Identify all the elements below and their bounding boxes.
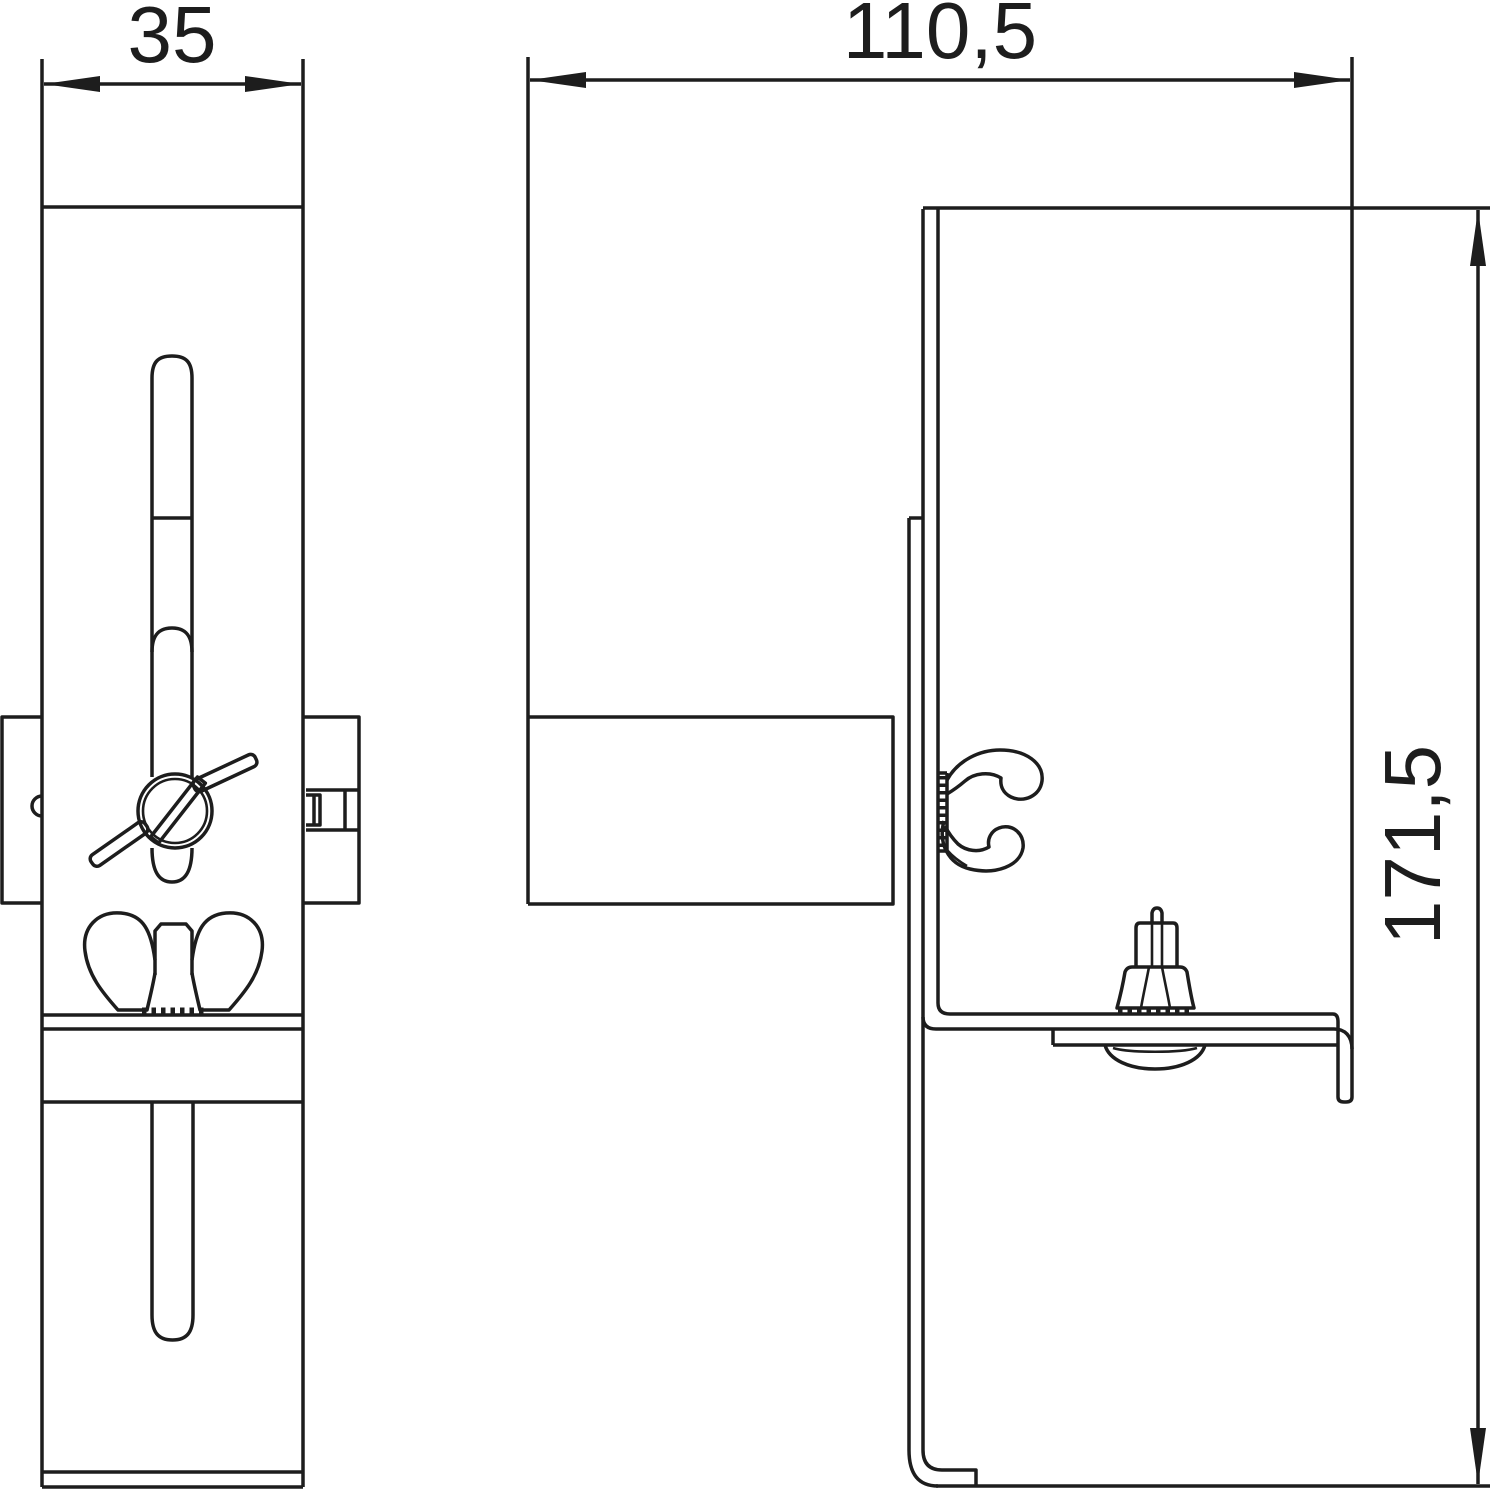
front-view	[2, 59, 359, 1487]
wing-nut-right-wing	[192, 913, 262, 1010]
dowel-inner-lines	[1141, 967, 1170, 1008]
dimension-label-front-width: 35	[128, 0, 217, 79]
slot-dome-arc	[152, 628, 192, 652]
lip-bottom-cap	[1338, 1097, 1352, 1102]
arrowhead-down	[1470, 1428, 1486, 1484]
dowel-anchor	[1117, 967, 1194, 1008]
clamp-block	[528, 717, 893, 904]
side-view	[528, 57, 1490, 1486]
technical-drawing-canvas: 35 110,5 171,5	[0, 0, 1500, 1489]
dimension-label-side-height: 171,5	[1368, 745, 1457, 945]
slot-lower-cap	[152, 1315, 193, 1340]
left-tab	[2, 717, 42, 903]
under-flange-washer	[1053, 1029, 1338, 1045]
foot-inner-bend	[923, 1450, 976, 1486]
right-tab	[303, 717, 359, 903]
slot-upper-sides	[152, 378, 192, 777]
side-wing-nut-lower-wing	[942, 821, 1023, 871]
slot-top-cap	[152, 356, 192, 378]
flange-top-and-lip-inner	[938, 1003, 1338, 1097]
arrowhead-left	[530, 72, 586, 88]
slot-lower-sides	[152, 1102, 193, 1315]
dimension-annotations: 35 110,5 171,5	[44, 0, 1486, 1484]
wing-nut-left-wing	[85, 913, 155, 1010]
arrowhead-up	[1470, 210, 1486, 266]
arrowhead-left	[44, 76, 100, 92]
arrowhead-right	[245, 76, 301, 92]
wing-nut-body	[155, 924, 192, 975]
drawing-svg: 35 110,5 171,5	[0, 0, 1500, 1489]
dimension-label-side-width: 110,5	[843, 0, 1037, 75]
rod-threaded-section	[1136, 923, 1177, 967]
slot-bottom-cap	[152, 848, 192, 882]
right-tab-clip	[306, 795, 320, 825]
arrowhead-right	[1294, 72, 1350, 88]
side-wing-nut-upper-wing	[947, 750, 1042, 799]
screw-head-inner-arc	[1113, 1048, 1197, 1052]
rod-core-lines	[1152, 923, 1162, 967]
rod-tip	[1152, 908, 1162, 923]
